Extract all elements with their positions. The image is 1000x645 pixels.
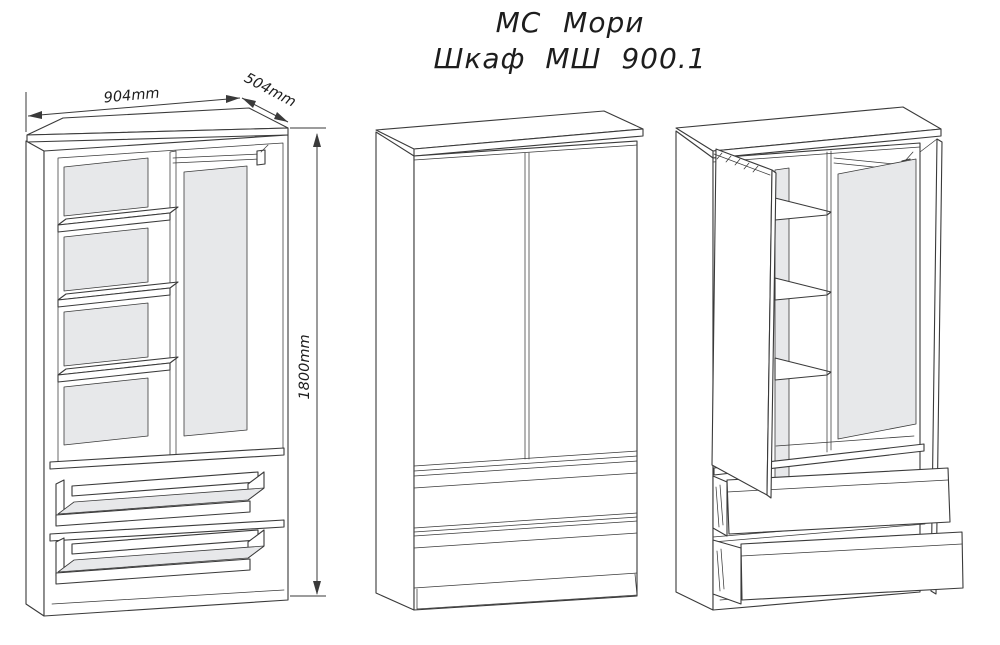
- back-panel-hanging: [184, 166, 247, 436]
- technical-drawing-sheet: МС Мори Шкаф МШ 900.1: [0, 0, 1000, 645]
- wardrobe-views-drawing: 904mm 504mm 1800mm: [0, 0, 1000, 645]
- left-door-open: [712, 149, 776, 498]
- dimension-height-label: 1800mm: [297, 334, 313, 399]
- side-panel: [376, 132, 414, 610]
- view-closed-front: [376, 111, 643, 610]
- view-doors-open: [676, 107, 963, 610]
- side-panel: [26, 141, 44, 616]
- right-door-open: [920, 139, 942, 594]
- dimension-width-label: 904mm: [103, 86, 160, 107]
- view-dimensioned-interior: [26, 108, 288, 616]
- front-face: [414, 141, 637, 610]
- side-panel: [676, 131, 713, 610]
- back-panel-hanging: [838, 159, 916, 439]
